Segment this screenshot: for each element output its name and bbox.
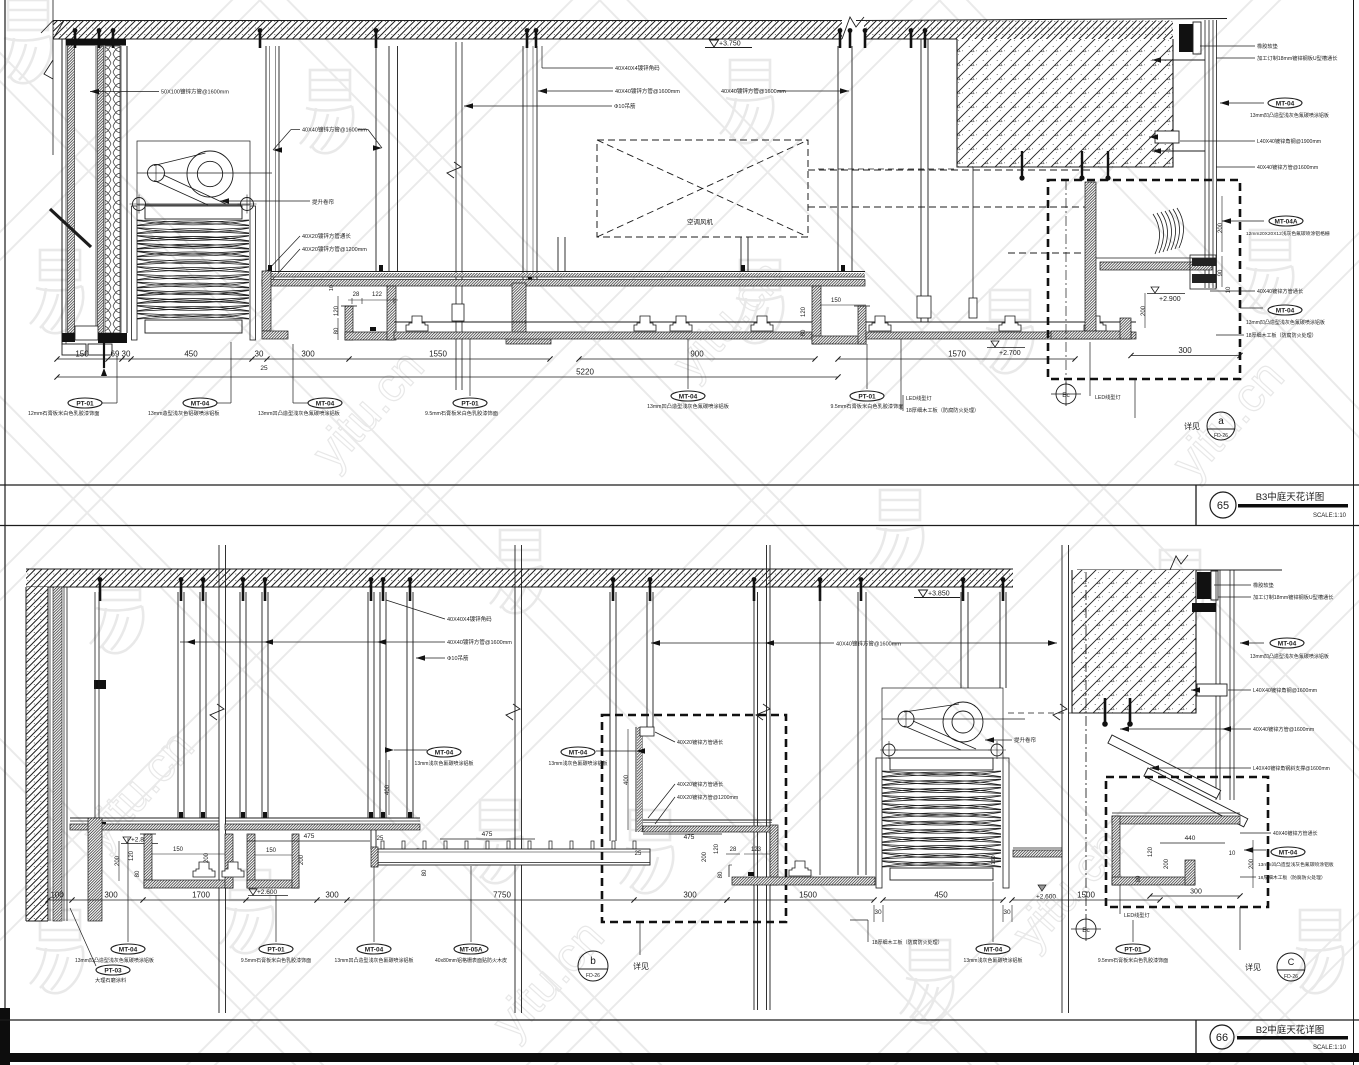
- svg-text:475: 475: [684, 834, 695, 841]
- svg-text:13mm凹凸造型浅灰色氟碳喷涂铝板: 13mm凹凸造型浅灰色氟碳喷涂铝板: [1250, 112, 1329, 119]
- svg-text:40X40镀锌方管@1600mm: 40X40镀锌方管@1600mm: [302, 126, 367, 134]
- svg-text:40X40镀锌方管@1600mm: 40X40镀锌方管@1600mm: [1253, 725, 1314, 733]
- svg-text:200: 200: [1249, 858, 1255, 869]
- svg-text:+2.600: +2.600: [1036, 894, 1056, 901]
- svg-text:200: 200: [299, 854, 305, 865]
- svg-text:提升卷帘: 提升卷帘: [312, 198, 335, 206]
- svg-text:18厚细木工板（防腐防火处理）: 18厚细木工板（防腐防火处理）: [1258, 874, 1326, 881]
- svg-text:MT-04: MT-04: [1276, 100, 1295, 107]
- svg-text:18厚细木工板（防腐防火处理）: 18厚细木工板（防腐防火处理）: [872, 939, 943, 946]
- svg-text:MT-04: MT-04: [1278, 640, 1297, 647]
- svg-text:40X20镀锌方管通长: 40X20镀锌方管通长: [302, 232, 351, 240]
- svg-text:80: 80: [718, 871, 724, 878]
- svg-text:40X40镀锌方管@1600mm: 40X40镀锌方管@1600mm: [836, 640, 901, 648]
- svg-text:13mm浅灰色氟碳喷涂铝板: 13mm浅灰色氟碳喷涂铝板: [415, 760, 474, 767]
- svg-text:MT-04: MT-04: [365, 946, 384, 953]
- svg-text:MT-04: MT-04: [316, 400, 335, 407]
- svg-text:C: C: [1288, 957, 1295, 967]
- svg-text:100: 100: [50, 891, 64, 900]
- svg-text:300: 300: [1190, 889, 1202, 896]
- svg-text:90: 90: [1218, 269, 1224, 276]
- svg-text:150: 150: [75, 350, 89, 359]
- svg-text:80: 80: [422, 869, 428, 876]
- svg-text:28: 28: [353, 292, 360, 298]
- svg-text:MT-04: MT-04: [191, 400, 210, 407]
- svg-text:200: 200: [115, 855, 121, 866]
- svg-text:MT-05A: MT-05A: [459, 946, 482, 953]
- svg-text:200: 200: [702, 851, 708, 862]
- svg-text:Ec: Ec: [1082, 927, 1090, 934]
- svg-text:40X40镀锌方管通长: 40X40镀锌方管通长: [1257, 287, 1304, 295]
- svg-text:1570: 1570: [948, 350, 966, 359]
- svg-text:300: 300: [683, 891, 697, 900]
- svg-text:10: 10: [329, 285, 335, 291]
- svg-text:150: 150: [173, 847, 184, 853]
- svg-text:B3中庭天花详图: B3中庭天花详图: [1256, 491, 1325, 503]
- svg-text:PT-01: PT-01: [858, 393, 876, 400]
- svg-text:FD-26: FD-26: [1214, 433, 1228, 439]
- svg-text:120: 120: [1148, 846, 1154, 857]
- svg-text:详见: 详见: [633, 961, 649, 971]
- svg-text:25: 25: [635, 851, 642, 857]
- svg-text:25: 25: [260, 365, 268, 372]
- svg-text:150: 150: [266, 848, 277, 854]
- svg-text:120: 120: [714, 843, 720, 854]
- svg-text:900: 900: [690, 350, 704, 359]
- svg-text:40x80mm铝格栅表面贴防火木皮: 40x80mm铝格栅表面贴防火木皮: [435, 957, 507, 964]
- svg-text:40X40镀锌方管@1600mm: 40X40镀锌方管@1600mm: [1257, 163, 1318, 171]
- svg-text:+2.700: +2.700: [999, 350, 1021, 357]
- svg-text:40X40镀锌方管@1600mm: 40X40镀锌方管@1600mm: [615, 87, 680, 95]
- svg-text:MT-04: MT-04: [435, 749, 454, 756]
- svg-text:40X40X4镀锌角码: 40X40X4镀锌角码: [447, 615, 492, 623]
- svg-text:50X100镀锌方管@1600mm: 50X100镀锌方管@1600mm: [161, 88, 229, 96]
- svg-text:B2中庭天花详图: B2中庭天花详图: [1256, 1024, 1325, 1036]
- svg-text:123: 123: [751, 847, 762, 853]
- svg-text:L40X40镀锌角钢@1900mm: L40X40镀锌角钢@1900mm: [1257, 137, 1321, 145]
- svg-text:MT-04: MT-04: [984, 946, 1003, 953]
- svg-text:300: 300: [1178, 346, 1192, 355]
- svg-text:13mm凹凸造型浅灰色氟碳喷涂铝板: 13mm凹凸造型浅灰色氟碳喷涂铝板: [1246, 319, 1325, 326]
- svg-text:80: 80: [801, 329, 807, 336]
- svg-text:+2.900: +2.900: [1159, 296, 1181, 303]
- svg-text:450: 450: [934, 891, 948, 900]
- svg-text:1550: 1550: [429, 350, 447, 359]
- svg-text:40X20镀锌方管@1200mm: 40X20镀锌方管@1200mm: [677, 793, 738, 801]
- svg-text:300: 300: [104, 891, 118, 900]
- svg-text:PT-01: PT-01: [461, 400, 479, 407]
- svg-text:MT-04A: MT-04A: [1274, 218, 1297, 225]
- svg-text:PT-01: PT-01: [76, 400, 94, 407]
- svg-text:9.5mm石膏板米白色乳胶漆饰面: 9.5mm石膏板米白色乳胶漆饰面: [1098, 957, 1168, 964]
- svg-text:80: 80: [135, 870, 141, 877]
- svg-text:66: 66: [1216, 1032, 1228, 1044]
- svg-text:40X20镀锌方管@1200mm: 40X20镀锌方管@1200mm: [302, 245, 367, 253]
- svg-text:13mm凹凸造型浅灰色氟碳喷涂铝板: 13mm凹凸造型浅灰色氟碳喷涂铝板: [75, 957, 154, 964]
- svg-text:1700: 1700: [192, 891, 210, 900]
- svg-text:160: 160: [991, 855, 997, 864]
- svg-text:120: 120: [129, 850, 135, 861]
- svg-text:450: 450: [184, 350, 198, 359]
- svg-text:400: 400: [385, 784, 391, 795]
- svg-text:Ec: Ec: [1062, 392, 1070, 399]
- svg-text:120: 120: [334, 305, 340, 316]
- svg-text:40X20镀锌方管通长: 40X20镀锌方管通长: [677, 738, 724, 746]
- svg-text:10: 10: [1229, 851, 1236, 857]
- svg-text:Φ10吊筋: Φ10吊筋: [614, 102, 636, 110]
- svg-text:13mm凹凸造型浅灰色氟碳喷涂铝板: 13mm凹凸造型浅灰色氟碳喷涂铝板: [258, 409, 341, 417]
- svg-text:475: 475: [304, 833, 315, 840]
- svg-text:200: 200: [204, 852, 210, 863]
- svg-text:PT-03: PT-03: [104, 967, 122, 974]
- svg-text:65: 65: [1217, 500, 1229, 512]
- svg-text:40X40镀锌方管通长: 40X40镀锌方管通长: [1273, 830, 1317, 837]
- svg-text:200: 200: [1218, 222, 1224, 233]
- svg-text:LED线型灯: LED线型灯: [1124, 911, 1150, 919]
- svg-text:FD-26: FD-26: [586, 973, 600, 979]
- svg-text:13mm浅灰色氟碳喷涂铝板: 13mm浅灰色氟碳喷涂铝板: [549, 760, 608, 767]
- svg-text:提升卷帘: 提升卷帘: [1014, 736, 1037, 744]
- svg-text:13mm凹凸造型浅灰色氟碳喷涂铝板: 13mm凹凸造型浅灰色氟碳喷涂铝板: [1250, 653, 1329, 660]
- svg-text:12mm20X20X12浅灰色氟碳喷涂铝格栅: 12mm20X20X12浅灰色氟碳喷涂铝格栅: [1246, 230, 1330, 237]
- svg-text:300: 300: [301, 350, 315, 359]
- svg-text:28: 28: [730, 847, 737, 853]
- svg-text:加工订制18mm镀锌钢板U型槽通长: 加工订制18mm镀锌钢板U型槽通长: [1257, 54, 1338, 62]
- svg-text:30: 30: [1003, 909, 1011, 916]
- svg-text:10: 10: [1226, 286, 1232, 293]
- svg-text:475: 475: [482, 831, 493, 838]
- svg-text:加工订制18mm镀锌钢板U型槽通长: 加工订制18mm镀锌钢板U型槽通长: [1253, 593, 1334, 601]
- svg-text:LED线型灯: LED线型灯: [1095, 393, 1121, 401]
- svg-text:橡胶软垫: 橡胶软垫: [1253, 581, 1275, 589]
- svg-text:FD-26: FD-26: [1284, 974, 1298, 980]
- svg-text:+2.600: +2.600: [257, 889, 277, 896]
- svg-text:122: 122: [372, 292, 383, 298]
- svg-text:30: 30: [255, 350, 264, 359]
- svg-text:详见: 详见: [1245, 962, 1261, 972]
- svg-text:SCALE:1:10: SCALE:1:10: [1313, 1045, 1347, 1051]
- svg-text:13mm浅灰色氟碳喷涂铝板: 13mm浅灰色氟碳喷涂铝板: [964, 957, 1023, 964]
- svg-text:13mm凹凸造型浅灰色氟碳喷涂铝板: 13mm凹凸造型浅灰色氟碳喷涂铝板: [1258, 861, 1334, 868]
- svg-text:大理石磨涂料: 大理石磨涂料: [95, 976, 126, 984]
- svg-text:9.5mm石膏板米白色乳胶漆饰面: 9.5mm石膏板米白色乳胶漆饰面: [425, 409, 498, 417]
- svg-text:80: 80: [334, 327, 340, 334]
- svg-text:150: 150: [831, 298, 842, 304]
- svg-text:MT-04: MT-04: [119, 946, 138, 953]
- svg-text:440: 440: [1185, 835, 1196, 842]
- svg-text:1500: 1500: [1077, 891, 1095, 900]
- svg-text:69: 69: [111, 350, 120, 359]
- svg-text:L40X40镀锌角钢斜支撑@1600mm: L40X40镀锌角钢斜支撑@1600mm: [1253, 765, 1330, 772]
- svg-text:13mm造型浅灰色铝碳喷涂铝板: 13mm造型浅灰色铝碳喷涂铝板: [148, 409, 220, 417]
- svg-text:LED线型灯: LED线型灯: [906, 394, 932, 402]
- svg-text:30: 30: [874, 909, 882, 916]
- svg-text:+3.750: +3.750: [719, 41, 741, 48]
- svg-text:MT-04: MT-04: [1279, 849, 1298, 856]
- svg-text:+3.850: +3.850: [928, 591, 950, 598]
- svg-text:a: a: [1218, 416, 1224, 427]
- svg-text:L40X40镀锌角钢@1600mm: L40X40镀锌角钢@1600mm: [1253, 686, 1317, 694]
- svg-text:13mm凹凸造型浅灰色氟碳喷涂铝板: 13mm凹凸造型浅灰色氟碳喷涂铝板: [335, 957, 414, 964]
- svg-text:30: 30: [122, 350, 131, 359]
- svg-text:橡胶软垫: 橡胶软垫: [1257, 42, 1279, 50]
- svg-text:40X40X4镀锌角码: 40X40X4镀锌角码: [615, 64, 660, 72]
- svg-text:18厚细木工板（防腐防火处理）: 18厚细木工板（防腐防火处理）: [1246, 332, 1317, 339]
- svg-text:400: 400: [624, 774, 630, 785]
- svg-text:7750: 7750: [493, 891, 511, 900]
- svg-text:PT-01: PT-01: [1124, 946, 1142, 953]
- svg-text:9.5mm石膏板米白色乳胶漆饰面: 9.5mm石膏板米白色乳胶漆饰面: [831, 402, 904, 410]
- svg-text:40X40镀锌方管@1600mm: 40X40镀锌方管@1600mm: [447, 638, 512, 646]
- svg-text:40X40镀锌方管@1600mm: 40X40镀锌方管@1600mm: [721, 87, 786, 95]
- svg-text:200: 200: [1141, 305, 1147, 316]
- svg-text:详见: 详见: [1184, 421, 1200, 431]
- svg-text:PT-01: PT-01: [267, 946, 285, 953]
- svg-text:40X20镀锌方管通长: 40X20镀锌方管通长: [677, 780, 724, 788]
- svg-text:b: b: [590, 956, 596, 967]
- svg-text:MT-04: MT-04: [679, 393, 698, 400]
- svg-text:18厚细木工板（防腐防火处理）: 18厚细木工板（防腐防火处理）: [906, 406, 979, 414]
- svg-text:MT-04: MT-04: [1276, 307, 1295, 314]
- svg-text:300: 300: [325, 891, 339, 900]
- svg-text:13mm凹凸造型浅灰色氟碳喷涂铝板: 13mm凹凸造型浅灰色氟碳喷涂铝板: [647, 402, 730, 410]
- svg-text:9.5mm石膏板米白色乳胶漆饰面: 9.5mm石膏板米白色乳胶漆饰面: [241, 957, 311, 964]
- svg-text:MT-04: MT-04: [569, 749, 588, 756]
- svg-text:1500: 1500: [799, 891, 817, 900]
- svg-text:Φ10吊筋: Φ10吊筋: [447, 654, 469, 662]
- svg-text:200: 200: [1164, 858, 1170, 869]
- svg-text:SCALE:1:10: SCALE:1:10: [1313, 513, 1347, 519]
- svg-text:12mm石膏板米白色乳胶漆饰面: 12mm石膏板米白色乳胶漆饰面: [28, 409, 99, 417]
- svg-text:120: 120: [801, 306, 807, 317]
- svg-text:空调风机: 空调风机: [687, 217, 714, 226]
- svg-text:5220: 5220: [576, 368, 594, 377]
- svg-text:80: 80: [1136, 875, 1142, 882]
